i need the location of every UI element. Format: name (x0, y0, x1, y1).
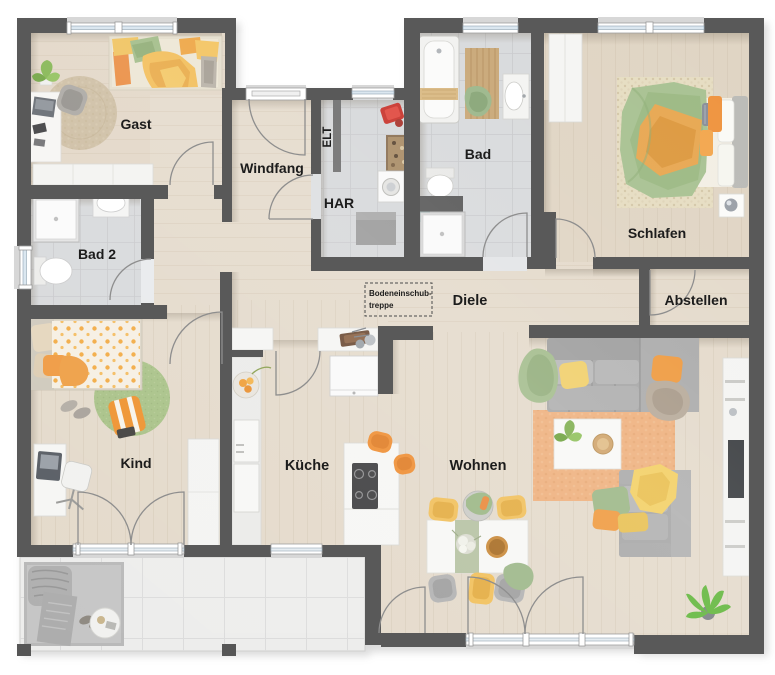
svg-text:Bodeneinschub-: Bodeneinschub- (369, 289, 432, 298)
svg-text:Bad: Bad (465, 146, 491, 162)
svg-text:Diele: Diele (453, 293, 488, 309)
svg-text:Windfang: Windfang (240, 160, 304, 176)
svg-text:HAR: HAR (324, 195, 354, 211)
svg-text:treppe: treppe (369, 301, 394, 310)
svg-text:Abstellen: Abstellen (664, 292, 727, 308)
svg-text:Kind: Kind (120, 455, 151, 471)
svg-text:Wohnen: Wohnen (450, 458, 507, 474)
svg-text:Küche: Küche (285, 458, 329, 474)
svg-text:Gast: Gast (120, 116, 151, 132)
svg-text:Bad 2: Bad 2 (78, 246, 116, 262)
svg-text:Schlafen: Schlafen (628, 225, 686, 241)
svg-text:ELT: ELT (322, 127, 334, 148)
